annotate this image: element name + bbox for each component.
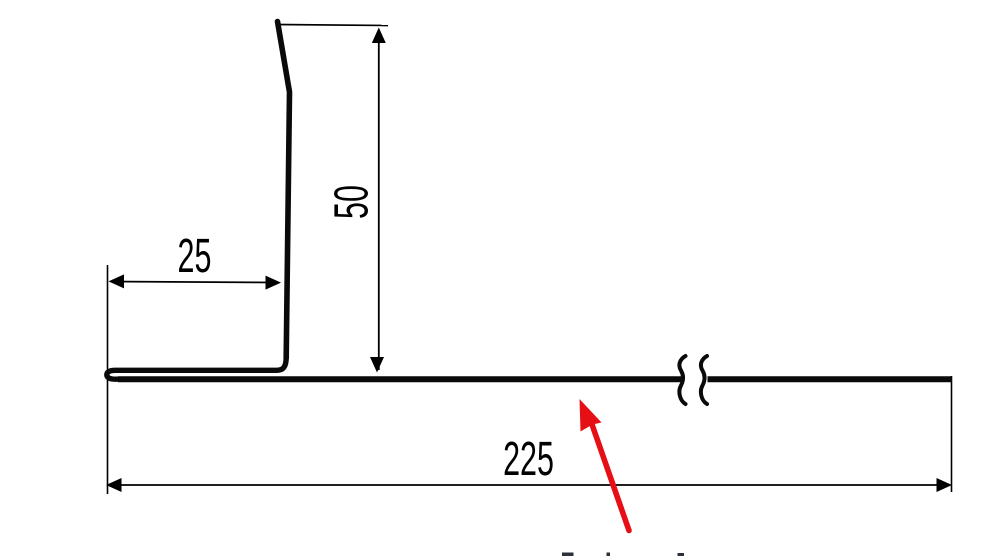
svg-text:25: 25 — [178, 229, 212, 283]
svg-text:50: 50 — [325, 185, 379, 219]
svg-text:225: 225 — [503, 432, 554, 486]
